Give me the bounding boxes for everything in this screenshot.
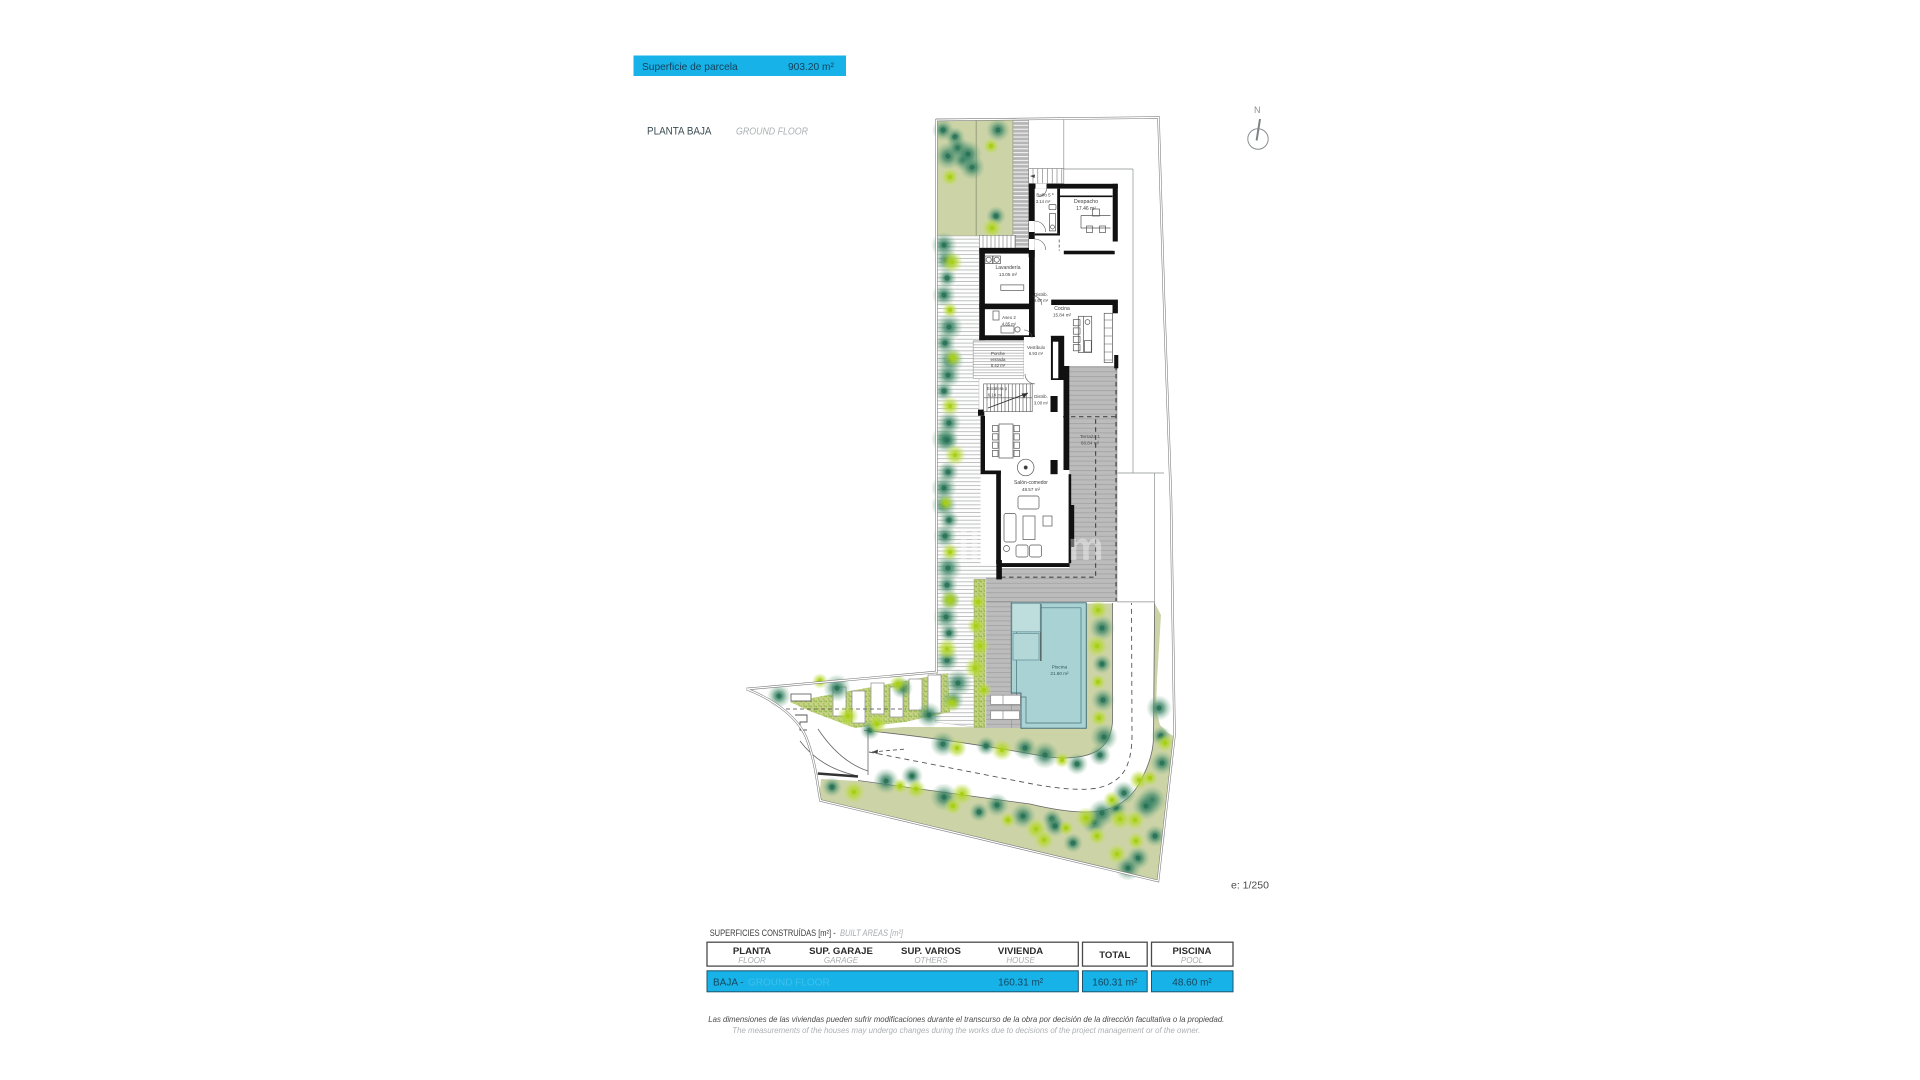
svg-text:903.20 m²: 903.20 m² (788, 62, 834, 73)
svg-text:GROUND FLOOR: GROUND FLOOR (748, 978, 830, 989)
svg-text:Baño 5 ª: Baño 5 ª (1036, 193, 1054, 198)
svg-text:4.85 m²: 4.85 m² (1002, 322, 1017, 327)
svg-text:Terraza 1: Terraza 1 (1080, 434, 1100, 440)
svg-text:15.84 m²: 15.84 m² (1053, 313, 1072, 318)
svg-text:Superficie de parcela: Superficie de parcela (642, 62, 738, 73)
svg-text:TOTAL: TOTAL (1099, 950, 1130, 961)
svg-text:BUILT AREAS [m²]: BUILT AREAS [m²] (840, 928, 903, 938)
svg-text:Porche: Porche (991, 351, 1005, 356)
svg-text:9.67 m²: 9.67 m² (1034, 298, 1049, 303)
svg-text:Distrib.: Distrib. (1034, 394, 1048, 399)
svg-text:FLOOR: FLOOR (738, 956, 766, 965)
svg-text:48.60 m²: 48.60 m² (1172, 978, 1212, 989)
svg-text:13.05 m²: 13.05 m² (999, 272, 1018, 277)
svg-text:Aseo 2: Aseo 2 (1002, 315, 1016, 320)
svg-text:OTHERS: OTHERS (914, 956, 948, 965)
svg-text:m: m (1068, 525, 1104, 569)
svg-text:21.60 m²: 21.60 m² (1050, 671, 1069, 676)
svg-text:The measurements of the houses: The measurements of the houses may under… (732, 1026, 1200, 1035)
svg-text:POOL: POOL (1181, 956, 1203, 965)
svg-text:GARAGE: GARAGE (824, 956, 859, 965)
svg-text:Lavandería: Lavandería (995, 265, 1020, 271)
svg-text:Piscina: Piscina (1052, 665, 1068, 671)
svg-text:BAJA -: BAJA - (713, 978, 744, 989)
svg-text:entrada: entrada (991, 357, 1006, 362)
svg-text:N: N (1254, 105, 1261, 115)
svg-text:160.31 m²: 160.31 m² (998, 978, 1044, 989)
svg-text:48.57 m²: 48.57 m² (1022, 487, 1041, 492)
svg-text:66.84 m²: 66.84 m² (1081, 441, 1100, 446)
svg-text:160.31 m²: 160.31 m² (1092, 978, 1138, 989)
svg-text:6.14 m²: 6.14 m² (988, 393, 1003, 398)
svg-text:GROUND FLOOR: GROUND FLOOR (736, 126, 808, 138)
svg-text:Las dimensiones de las viviend: Las dimensiones de las viviendas pueden … (708, 1015, 1224, 1024)
svg-text:HOUSE: HOUSE (1006, 956, 1035, 965)
svg-text:PLANTA BAJA: PLANTA BAJA (647, 126, 712, 138)
svg-text:8.42 m²: 8.42 m² (991, 363, 1006, 368)
svg-text:SUPERFICIES CONSTRUÍDAS [m²] -: SUPERFICIES CONSTRUÍDAS [m²] - (710, 928, 836, 938)
svg-text:6.93 m²: 6.93 m² (1029, 351, 1044, 356)
svg-text:ill: ill (958, 525, 991, 569)
svg-text:3.00 m²: 3.00 m² (1034, 401, 1049, 406)
svg-text:Despacho: Despacho (1074, 199, 1098, 205)
svg-text:Escalera p: Escalera p (987, 386, 1008, 391)
svg-text:Salón-comedor: Salón-comedor (1014, 480, 1048, 486)
svg-text:3.14 m²: 3.14 m² (1036, 199, 1051, 204)
svg-text:Cocina: Cocina (1054, 306, 1070, 312)
svg-text:17.46 m²: 17.46 m² (1076, 206, 1096, 212)
svg-text:Distrib.: Distrib. (1034, 292, 1048, 297)
svg-text:e: 1/250: e: 1/250 (1231, 880, 1269, 892)
svg-text:Vestíbulo: Vestíbulo (1027, 345, 1046, 350)
